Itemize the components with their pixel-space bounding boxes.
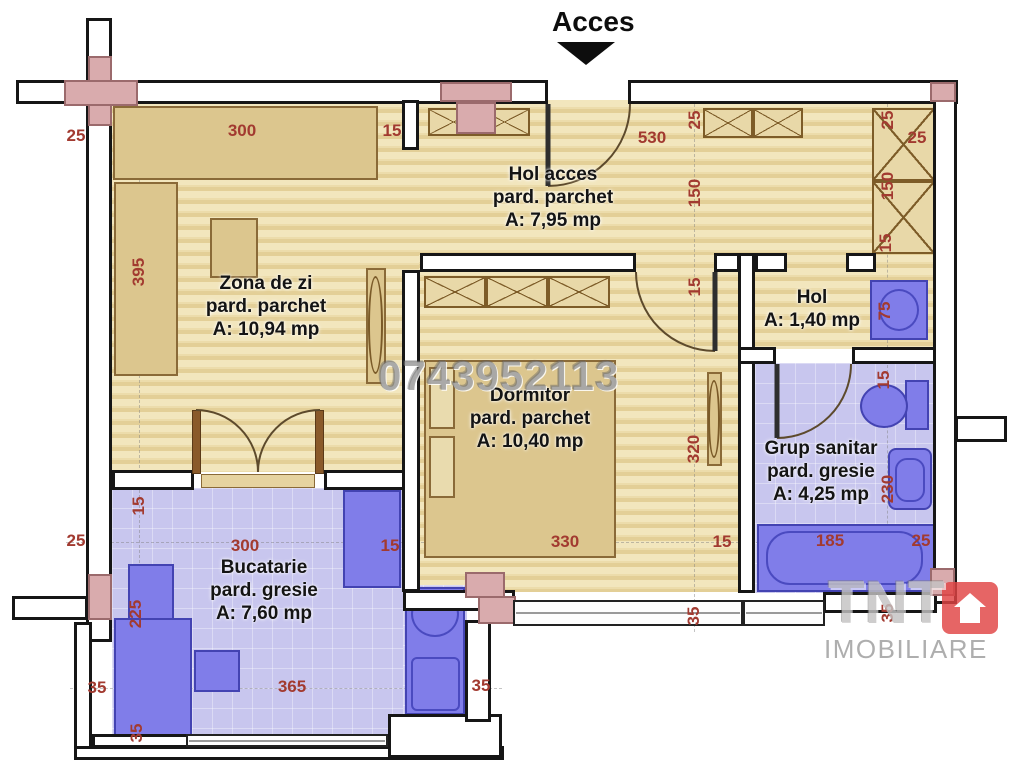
wall — [738, 347, 776, 364]
cabinet-top-band — [113, 106, 378, 180]
wardrobe-hatched — [703, 108, 803, 138]
dimension-label: 25 — [685, 111, 705, 130]
dimension-label: 225 — [126, 600, 146, 628]
room-label-line: A: 1,40 mp — [764, 309, 860, 332]
stove — [194, 650, 240, 692]
access-arrow-icon — [557, 42, 615, 65]
window-grup-sanitar — [743, 600, 825, 626]
dimension-label: 300 — [231, 536, 259, 556]
dimension-label: 15 — [129, 497, 149, 516]
wall — [852, 347, 937, 364]
dimension-label: 150 — [878, 172, 898, 200]
logo-house-box — [942, 582, 998, 634]
room-label-line: pard. parchet — [206, 295, 326, 318]
wall — [112, 470, 194, 490]
coffee-table — [210, 218, 258, 278]
agency-logo: TNT IMOBILIARE — [824, 570, 1024, 670]
kitchen-counter-left — [114, 618, 192, 742]
wardrobe-cell — [548, 276, 610, 308]
dimension-label: 185 — [816, 531, 844, 551]
dimension-label: 150 — [685, 179, 705, 207]
kitchen-counter-detail — [411, 657, 460, 711]
room-label-line: pard. gresie — [765, 460, 878, 483]
dimension-label: 230 — [878, 475, 898, 503]
wall — [628, 80, 958, 104]
dimension-label: 300 — [228, 121, 256, 141]
sink-basin — [895, 458, 925, 502]
wardrobe-cell — [753, 108, 803, 138]
room-label-line: Bucatarie — [210, 556, 318, 579]
room-label-line: pard. parchet — [493, 186, 613, 209]
window-dormitor — [513, 600, 743, 626]
dimension-label: 15 — [876, 234, 896, 253]
logo-subtext: IMOBILIARE — [824, 634, 988, 665]
room-label-line: Hol — [764, 286, 860, 309]
wall — [955, 416, 1007, 442]
dimension-label: 35 — [127, 724, 147, 743]
room-label-bucatarie: Bucatariepard. gresieA: 7,60 mp — [210, 556, 318, 625]
column — [88, 574, 112, 620]
dimension-label: 330 — [551, 532, 579, 552]
room-label-grup-sanitar: Grup sanitarpard. gresieA: 4,25 mp — [765, 437, 878, 506]
door-threshold — [201, 474, 315, 488]
phone-watermark: 0743952113 — [378, 352, 619, 400]
column — [478, 596, 516, 624]
door-leaf — [315, 410, 324, 474]
wardrobe-cell — [486, 276, 548, 308]
wardrobe-hatched-dormitor — [424, 276, 610, 308]
wall — [324, 470, 405, 490]
room-label-line: Grup sanitar — [765, 437, 878, 460]
house-icon — [952, 591, 988, 625]
dimension-label: 25 — [67, 531, 86, 551]
dimension-label: 530 — [638, 128, 666, 148]
room-label-line: A: 7,95 mp — [493, 209, 613, 232]
dimension-label: 15 — [381, 536, 400, 556]
room-label-hol: HolA: 1,40 mp — [764, 286, 860, 332]
wall — [738, 253, 755, 593]
dimension-label: 15 — [383, 121, 402, 141]
wall — [714, 253, 740, 272]
room-label-line: Hol acces — [493, 163, 613, 186]
dimension-label: 15 — [874, 371, 894, 390]
room-label-line: Zona de zi — [206, 272, 326, 295]
room-label-line: A: 10,94 mp — [206, 318, 326, 341]
wall — [402, 100, 419, 150]
tv-screen-dormitor — [708, 380, 720, 458]
wall — [420, 253, 636, 272]
wall — [933, 80, 957, 604]
toilet-bowl — [860, 384, 908, 428]
dimension-label: 35 — [472, 676, 491, 696]
column — [930, 82, 956, 102]
dimension-label: 25 — [912, 531, 931, 551]
room-label-line: pard. gresie — [210, 579, 318, 602]
wall — [846, 253, 876, 272]
dimension-label: 25 — [908, 128, 927, 148]
room-label-hol-acces: Hol accespard. parchetA: 7,95 mp — [493, 163, 613, 232]
column — [465, 572, 505, 598]
dimension-label: 75 — [875, 302, 895, 321]
dimension-label: 365 — [278, 677, 306, 697]
access-label: Acces — [552, 6, 635, 38]
column — [64, 80, 138, 106]
wall — [86, 80, 112, 642]
toilet-tank — [905, 380, 929, 430]
wardrobe-cell — [703, 108, 753, 138]
door-leaf — [192, 410, 201, 474]
dimension-label: 395 — [129, 258, 149, 286]
wall — [465, 620, 491, 722]
room-label-line: A: 10,40 mp — [470, 430, 590, 453]
floor-plan: Acces 2530015530252525150150153951575153… — [0, 0, 1024, 768]
dimension-label: 15 — [685, 278, 705, 297]
dimension-label: 320 — [684, 435, 704, 463]
room-label-line: A: 7,60 mp — [210, 602, 318, 625]
wall — [755, 253, 787, 272]
wall — [402, 270, 420, 592]
dimension-label: 35 — [88, 678, 107, 698]
pillow — [429, 436, 455, 498]
dimension-label: 25 — [878, 111, 898, 130]
column — [456, 102, 496, 134]
room-label-zona-de-zi: Zona de zipard. parchetA: 10,94 mp — [206, 272, 326, 341]
wall — [12, 596, 88, 620]
window-bucatarie — [186, 734, 388, 747]
dimension-label: 35 — [684, 607, 704, 626]
room-label-line: A: 4,25 mp — [765, 483, 878, 506]
dimension-label: 25 — [67, 126, 86, 146]
wardrobe-cell — [424, 276, 486, 308]
logo-text: TNT — [828, 568, 945, 637]
room-label-line: pard. parchet — [470, 407, 590, 430]
dimension-label: 15 — [713, 532, 732, 552]
column — [440, 82, 512, 102]
